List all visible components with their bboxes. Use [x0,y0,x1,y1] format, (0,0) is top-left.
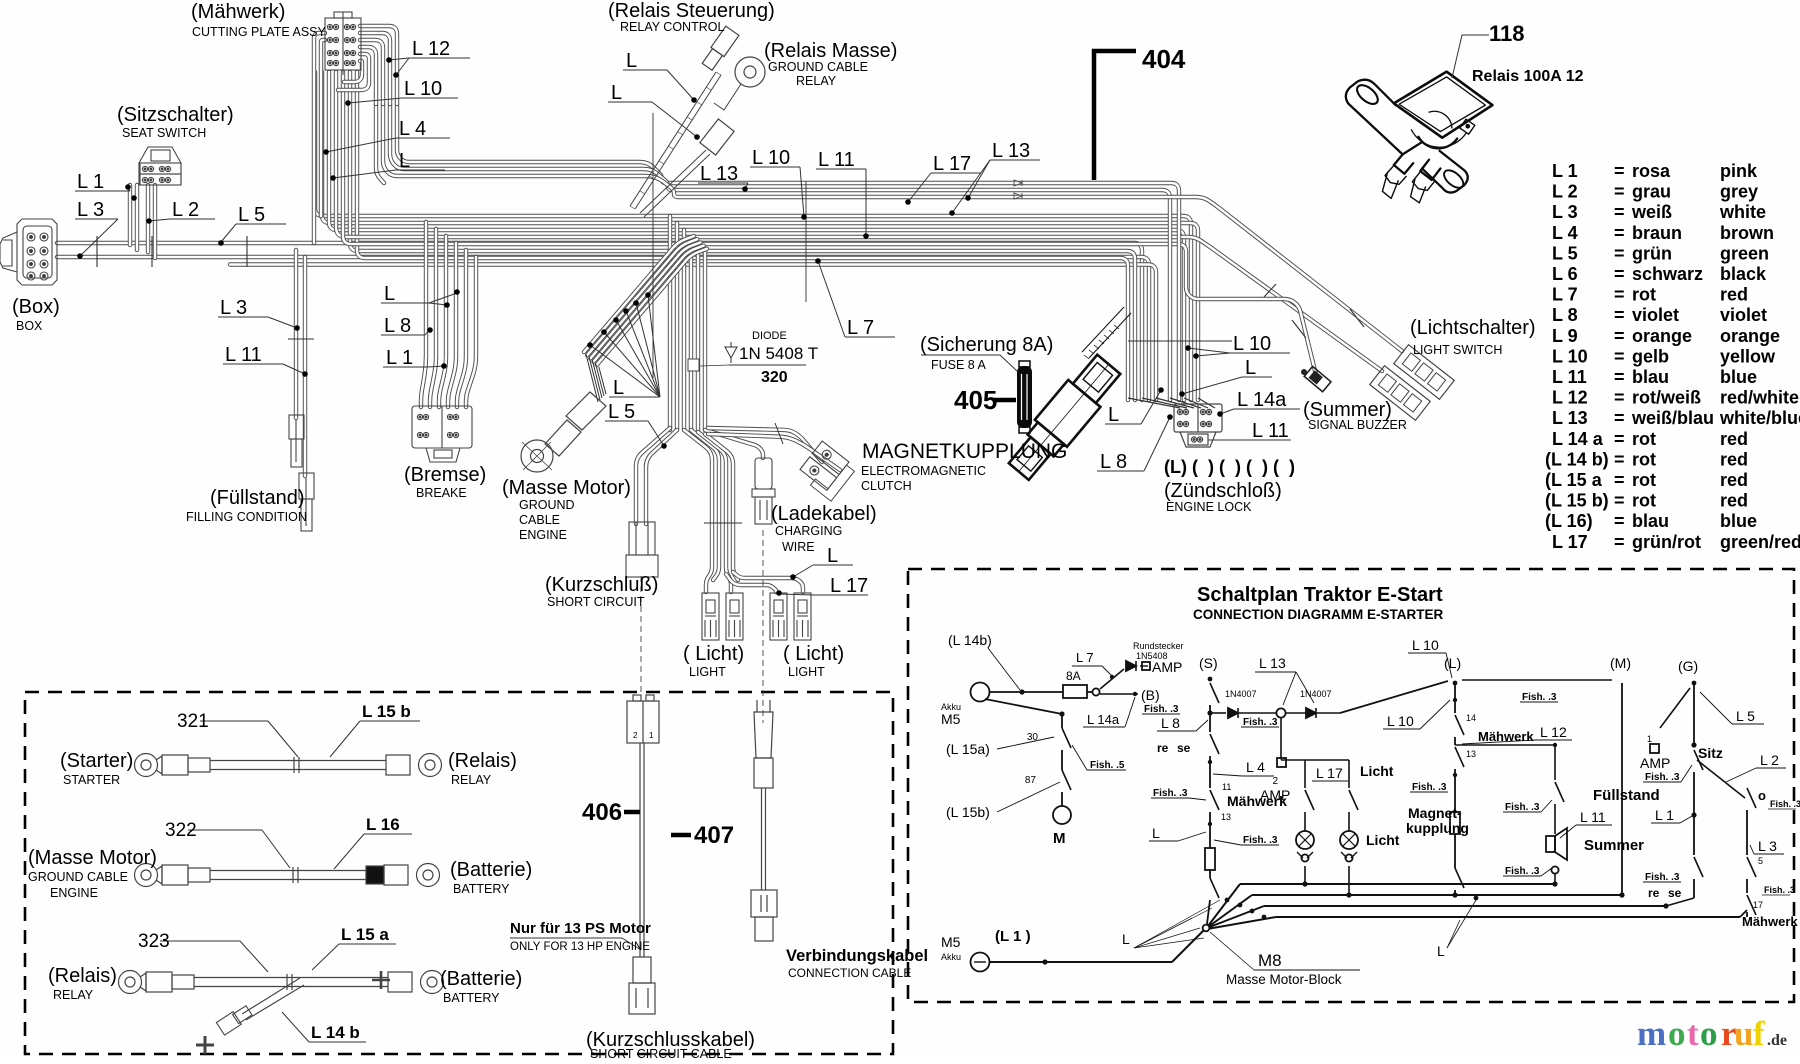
svg-text:green/red: green/red [1720,532,1800,552]
svg-text:Summer: Summer [1584,837,1644,854]
svg-text:ENGINE: ENGINE [50,886,98,900]
svg-text:=: = [1614,223,1625,243]
svg-text:L: L [827,545,838,567]
svg-text:yellow: yellow [1720,346,1776,366]
svg-text:L 8: L 8 [1552,305,1578,325]
svg-text:L: L [611,82,622,104]
svg-text:(L 14 b): (L 14 b) [1545,449,1609,469]
svg-text:L: L [1108,404,1119,426]
svg-text:grey: grey [1720,182,1758,202]
svg-text:RELAY CONTROL: RELAY CONTROL [620,20,724,34]
svg-text:orange: orange [1632,326,1692,346]
svg-text:Fish. .3: Fish. .3 [1144,704,1179,715]
svg-text:L 3: L 3 [77,199,104,221]
svg-text:Fish. .3: Fish. .3 [1505,866,1540,877]
svg-text:CONNECTION CABLE: CONNECTION CABLE [788,966,911,980]
svg-text:L 5: L 5 [238,204,265,226]
svg-text:(Zündschloß): (Zündschloß) [1164,480,1282,502]
svg-text:L: L [399,150,410,172]
svg-text:(L 15 b): (L 15 b) [1545,491,1609,511]
svg-text:( Licht): ( Licht) [683,643,744,665]
svg-text:=: = [1614,326,1625,346]
svg-text:rot: rot [1632,285,1656,305]
svg-text:L 6: L 6 [1552,264,1578,284]
svg-text:GROUND: GROUND [519,498,575,512]
svg-text:ENGINE: ENGINE [519,528,567,542]
svg-text:Fish. .3: Fish. .3 [1770,799,1800,809]
svg-text:schwarz: schwarz [1632,264,1703,284]
svg-text:CONNECTION DIAGRAMM E-STARTER: CONNECTION DIAGRAMM E-STARTER [1193,607,1443,622]
svg-text:red: red [1720,429,1748,449]
svg-text:kupplung: kupplung [1406,820,1469,836]
svg-text:braun: braun [1632,223,1682,243]
svg-text:violet: violet [1720,305,1767,325]
svg-text:red/white: red/white [1720,388,1799,408]
svg-text:se: se [1668,886,1682,900]
svg-text:=: = [1614,470,1625,490]
svg-text:gelb: gelb [1632,346,1669,366]
svg-text:L 13: L 13 [1552,408,1588,428]
svg-text:L 13: L 13 [700,163,738,185]
svg-text:pink: pink [1720,161,1758,181]
svg-text:rot: rot [1632,470,1656,490]
svg-text:Mähwerk: Mähwerk [1742,914,1798,929]
svg-text:(Masse Motor): (Masse Motor) [28,847,157,869]
svg-text:L 17: L 17 [1552,532,1588,552]
svg-text:406: 406 [582,799,622,826]
svg-text:(Sicherung 8A): (Sicherung 8A) [920,334,1053,356]
svg-text:(L 16): (L 16) [1545,511,1593,531]
svg-text:L 10: L 10 [404,78,442,100]
svg-text:Masse Motor-Block: Masse Motor-Block [1226,972,1342,987]
svg-text:L 3: L 3 [1758,838,1777,854]
svg-text:(L 15a): (L 15a) [946,741,990,757]
svg-text:blue: blue [1720,367,1757,387]
svg-text:SIGNAL BUZZER: SIGNAL BUZZER [1308,418,1407,432]
svg-text:L 4: L 4 [1552,223,1578,243]
svg-text:1: 1 [1647,734,1652,744]
svg-text:Verbindungskabel: Verbindungskabel [786,947,928,965]
svg-text:brown: brown [1720,223,1774,243]
svg-text:=: = [1614,388,1625,408]
svg-text:L 1: L 1 [1655,807,1674,823]
svg-text:2: 2 [1272,776,1278,787]
svg-text:violet: violet [1632,305,1679,325]
svg-text:L 9: L 9 [1552,326,1578,346]
svg-text:L 4: L 4 [1246,759,1265,775]
svg-text:GROUND CABLE: GROUND CABLE [28,870,128,884]
svg-text:o: o [1668,1014,1686,1053]
svg-text:CHARGING: CHARGING [775,524,842,538]
svg-text:(Masse Motor): (Masse Motor) [502,477,631,499]
svg-text:(L 14b): (L 14b) [948,632,992,648]
svg-text:L 11: L 11 [818,149,855,171]
svg-text:CABLE: CABLE [519,513,560,527]
svg-text:Fish. .3: Fish. .3 [1522,692,1557,703]
svg-text:17: 17 [1753,900,1763,910]
svg-text:FUSE 8 A: FUSE 8 A [931,358,987,372]
svg-text:L 14a: L 14a [1237,389,1287,411]
svg-text:LIGHT: LIGHT [689,665,726,679]
svg-text:rosa: rosa [1632,161,1671,181]
svg-text:=: = [1614,491,1625,511]
svg-text:(L) ( ) ( ) ( ) ( ): (L) ( ) ( ) ( ) ( ) [1164,457,1295,477]
svg-text:L 11: L 11 [1252,420,1289,442]
svg-text:(Mähwerk): (Mähwerk) [191,1,285,23]
svg-text:Fish. .3: Fish. .3 [1764,885,1795,895]
svg-text:BREAKE: BREAKE [416,486,467,500]
svg-text:LIGHT SWITCH: LIGHT SWITCH [1413,343,1502,357]
svg-text:Fish. .3: Fish. .3 [1243,835,1278,846]
svg-text:=: = [1614,161,1625,181]
svg-text:FILLING CONDITION: FILLING CONDITION [186,510,307,524]
svg-text:M5: M5 [941,711,961,727]
svg-text:L 7: L 7 [847,317,874,339]
svg-text:white: white [1719,202,1766,222]
svg-text:=: = [1614,264,1625,284]
svg-text:(Starter): (Starter) [60,750,133,772]
svg-text:LIGHT: LIGHT [788,665,825,679]
svg-text:red: red [1720,491,1748,511]
svg-text:BATTERY: BATTERY [453,882,510,896]
svg-text:STARTER: STARTER [63,773,120,787]
svg-text:Licht: Licht [1360,763,1394,779]
svg-text:se: se [1177,741,1191,755]
svg-text:Schaltplan Traktor E-Start: Schaltplan Traktor E-Start [1197,584,1443,606]
svg-text:L: L [613,377,624,399]
svg-text:L 11: L 11 [1552,367,1587,387]
svg-text:Mähwerk: Mähwerk [1478,729,1534,744]
svg-text:L 7: L 7 [1076,650,1094,665]
svg-text:405: 405 [954,385,997,415]
svg-text:(L 15b): (L 15b) [946,804,990,820]
svg-text:L 2: L 2 [1552,182,1578,202]
svg-text:M5: M5 [941,934,961,950]
svg-text:L 7: L 7 [1552,285,1578,305]
svg-text:grün: grün [1632,243,1672,263]
svg-text:Relais 100A 12: Relais 100A 12 [1472,68,1584,85]
svg-text:L 14 b: L 14 b [311,1023,360,1042]
svg-text:30: 30 [1027,732,1039,743]
svg-text:L 16: L 16 [366,815,400,834]
svg-text:L 8: L 8 [384,315,411,337]
svg-text:L 1: L 1 [386,347,413,369]
svg-text:13: 13 [1221,812,1231,822]
svg-text:=: = [1614,408,1625,428]
svg-text:(Relais Steuerung): (Relais Steuerung) [608,0,775,22]
svg-text:Rundstecker: Rundstecker [1133,641,1184,651]
svg-text:Licht: Licht [1366,832,1400,848]
svg-text:=: = [1614,305,1625,325]
svg-text:L: L [1152,825,1160,841]
svg-text:.de: .de [1767,1032,1787,1049]
svg-text:L 17: L 17 [933,153,971,175]
svg-text:11: 11 [1222,782,1231,792]
svg-text:M8: M8 [1258,951,1282,970]
svg-text:407: 407 [694,822,734,849]
svg-text:L 11: L 11 [225,344,262,366]
svg-text:L 5: L 5 [608,401,635,423]
svg-text:L 13: L 13 [992,140,1030,162]
svg-text:BATTERY: BATTERY [443,991,500,1005]
svg-text:( Licht): ( Licht) [783,643,844,665]
svg-text:=: = [1614,243,1625,263]
svg-text:L: L [1437,943,1445,959]
svg-text:=: = [1614,429,1625,449]
svg-text:322: 322 [165,820,197,841]
svg-text:Fish. .3: Fish. .3 [1505,802,1540,813]
svg-text:L: L [1245,357,1256,379]
svg-text:RELAY: RELAY [796,74,837,88]
svg-text:L 12: L 12 [1540,724,1567,740]
svg-text:L 15 a: L 15 a [341,925,389,944]
svg-text:black: black [1720,264,1767,284]
svg-text:(Batterie): (Batterie) [440,968,522,990]
svg-text:(G): (G) [1678,658,1698,674]
svg-text:m: m [1637,1014,1666,1053]
svg-text:weiß/blau: weiß/blau [1631,408,1714,428]
svg-text:Fish. .3: Fish. .3 [1243,717,1278,728]
svg-text:red: red [1720,449,1748,469]
svg-text:blau: blau [1632,367,1669,387]
svg-text:L 17: L 17 [830,575,868,597]
svg-text:L 4: L 4 [399,118,426,140]
svg-text:=: = [1614,202,1625,222]
svg-text:L 17: L 17 [1316,765,1343,781]
svg-text:L 3: L 3 [220,297,247,319]
svg-text:red: red [1720,470,1748,490]
svg-text:(Relais Masse): (Relais Masse) [764,40,897,62]
svg-text:RELAY: RELAY [53,988,94,1002]
svg-text:L: L [384,283,395,305]
svg-text:RELAY: RELAY [451,773,492,787]
svg-text:Mähwerk: Mähwerk [1227,793,1287,809]
svg-text:(B): (B) [1141,687,1160,703]
svg-text:(L 1 ): (L 1 ) [995,928,1031,945]
svg-text:CUTTING PLATE ASSY: CUTTING PLATE ASSY [192,25,326,39]
svg-text:404: 404 [1142,44,1186,74]
svg-text:AMP: AMP [1152,659,1182,675]
svg-text:Nur für 13 PS Motor: Nur für 13 PS Motor [510,920,651,937]
svg-text:13: 13 [1466,749,1476,759]
svg-text:L: L [1122,931,1130,947]
svg-text:87: 87 [1025,775,1037,786]
svg-text:L 10: L 10 [1552,346,1588,366]
svg-text:L 15 b: L 15 b [362,702,411,721]
svg-text:L 8: L 8 [1161,715,1180,731]
svg-text:L 10: L 10 [1233,333,1271,355]
svg-text:=: = [1614,285,1625,305]
svg-text:grün/rot: grün/rot [1632,532,1701,552]
svg-text:L 12: L 12 [412,38,450,60]
svg-text:L 2: L 2 [1760,752,1779,768]
svg-text:(Relais): (Relais) [48,965,117,987]
svg-text:(Batterie): (Batterie) [450,859,532,881]
svg-text:AMP: AMP [1640,755,1670,771]
svg-text:Magnet-: Magnet- [1408,805,1462,821]
svg-text:323: 323 [138,931,170,952]
svg-text:Fish. .3: Fish. .3 [1645,772,1680,783]
svg-text:=: = [1614,449,1625,469]
svg-text:Fish. .3: Fish. .3 [1412,782,1447,793]
svg-text:ELECTROMAGNETIC: ELECTROMAGNETIC [861,464,986,478]
svg-text:u: u [1734,1014,1753,1053]
svg-text:blue: blue [1720,511,1757,531]
svg-text:L 11: L 11 [1580,809,1606,825]
svg-text:L 5: L 5 [1552,243,1578,263]
svg-text:5: 5 [1758,856,1763,866]
svg-text:L 14a: L 14a [1087,712,1120,727]
svg-text:L 12: L 12 [1552,388,1588,408]
svg-text:ENGINE LOCK: ENGINE LOCK [1166,500,1252,514]
svg-text:Fish. .3: Fish. .3 [1153,788,1188,799]
svg-text:(L): (L) [1444,655,1461,671]
svg-text:re: re [1648,886,1660,900]
svg-text:L 1: L 1 [77,171,104,193]
svg-text:L 1: L 1 [1552,161,1578,181]
svg-text:(Relais): (Relais) [448,750,517,772]
svg-text:t: t [1687,1014,1699,1053]
svg-text:L 13: L 13 [1259,655,1286,671]
svg-text:M: M [1053,830,1066,847]
svg-text:green: green [1720,243,1769,263]
svg-text:(M): (M) [1610,655,1631,671]
svg-text:=: = [1614,346,1625,366]
svg-text:rot: rot [1632,491,1656,511]
svg-text:L 10: L 10 [1412,637,1439,653]
svg-text:L 10: L 10 [1387,713,1414,729]
svg-text:L 8: L 8 [1100,451,1127,473]
svg-text:14: 14 [1466,713,1476,723]
svg-text:o: o [1700,1014,1718,1053]
svg-text:118: 118 [1489,21,1525,46]
svg-text:GROUND CABLE: GROUND CABLE [768,60,868,74]
svg-text:L 14 a: L 14 a [1552,429,1604,449]
svg-text:orange: orange [1720,326,1780,346]
svg-text:=: = [1614,182,1625,202]
svg-text:1N4007: 1N4007 [1300,689,1332,699]
svg-text:(L 15 a: (L 15 a [1545,470,1603,490]
svg-text:(Bremse): (Bremse) [404,464,486,486]
svg-text:(Box): (Box) [12,296,60,318]
svg-text:(S): (S) [1199,655,1218,671]
svg-text:weiß: weiß [1631,202,1672,222]
svg-text:(Kurzschluß): (Kurzschluß) [545,574,658,596]
svg-text:CLUTCH: CLUTCH [861,479,912,493]
svg-text:=: = [1614,367,1625,387]
svg-text:321: 321 [177,711,209,732]
svg-text:blau: blau [1632,511,1669,531]
svg-text:grau: grau [1632,182,1671,202]
svg-text:SHORT CIRCUIT CABLE: SHORT CIRCUIT CABLE [590,1047,732,1059]
svg-text:SHORT CIRCUIT: SHORT CIRCUIT [547,595,645,609]
svg-text:=: = [1614,511,1625,531]
svg-text:(Sitzschalter): (Sitzschalter) [117,104,234,126]
svg-text:f: f [1753,1014,1765,1053]
svg-text:rot/weiß: rot/weiß [1632,388,1701,408]
svg-text:8A: 8A [1066,669,1081,683]
svg-text:L: L [626,50,637,72]
svg-text:(Ladekabel): (Ladekabel) [771,503,877,525]
svg-text:Akku: Akku [941,952,961,962]
svg-text:L 2: L 2 [172,199,199,221]
svg-text:1: 1 [649,731,654,740]
svg-text:MAGNETKUPPLUNG: MAGNETKUPPLUNG [862,440,1067,463]
svg-text:red: red [1720,285,1748,305]
svg-text:1N 5408 T: 1N 5408 T [739,344,818,363]
svg-text:320: 320 [761,369,788,386]
svg-text:1N5408: 1N5408 [1136,651,1168,661]
svg-text:2: 2 [633,731,638,740]
svg-text:Fish. .5: Fish. .5 [1090,760,1125,771]
svg-text:re: re [1157,741,1169,755]
svg-text:ONLY FOR 13 HP ENGINE: ONLY FOR 13 HP ENGINE [510,941,650,953]
svg-text:L 3: L 3 [1552,202,1578,222]
svg-text:Sitz: Sitz [1698,745,1723,761]
svg-text:Füllstand: Füllstand [1593,787,1660,804]
svg-text:L 5: L 5 [1736,708,1755,724]
svg-text:L 10: L 10 [752,147,790,169]
svg-text:WIRE: WIRE [782,540,815,554]
svg-text:DIODE: DIODE [752,330,787,342]
svg-text:rot: rot [1632,449,1656,469]
svg-text:rot: rot [1632,429,1656,449]
svg-text:1N4007: 1N4007 [1225,689,1257,699]
svg-text:Fish. .3: Fish. .3 [1645,872,1680,883]
svg-text:white/blue: white/blue [1719,408,1800,428]
svg-text:(Lichtschalter): (Lichtschalter) [1410,317,1536,339]
svg-text:o: o [1758,788,1766,803]
svg-text:(Füllstand): (Füllstand) [210,487,304,509]
svg-text:BOX: BOX [16,319,43,333]
svg-text:SEAT SWITCH: SEAT SWITCH [122,126,206,140]
svg-text:=: = [1614,532,1625,552]
